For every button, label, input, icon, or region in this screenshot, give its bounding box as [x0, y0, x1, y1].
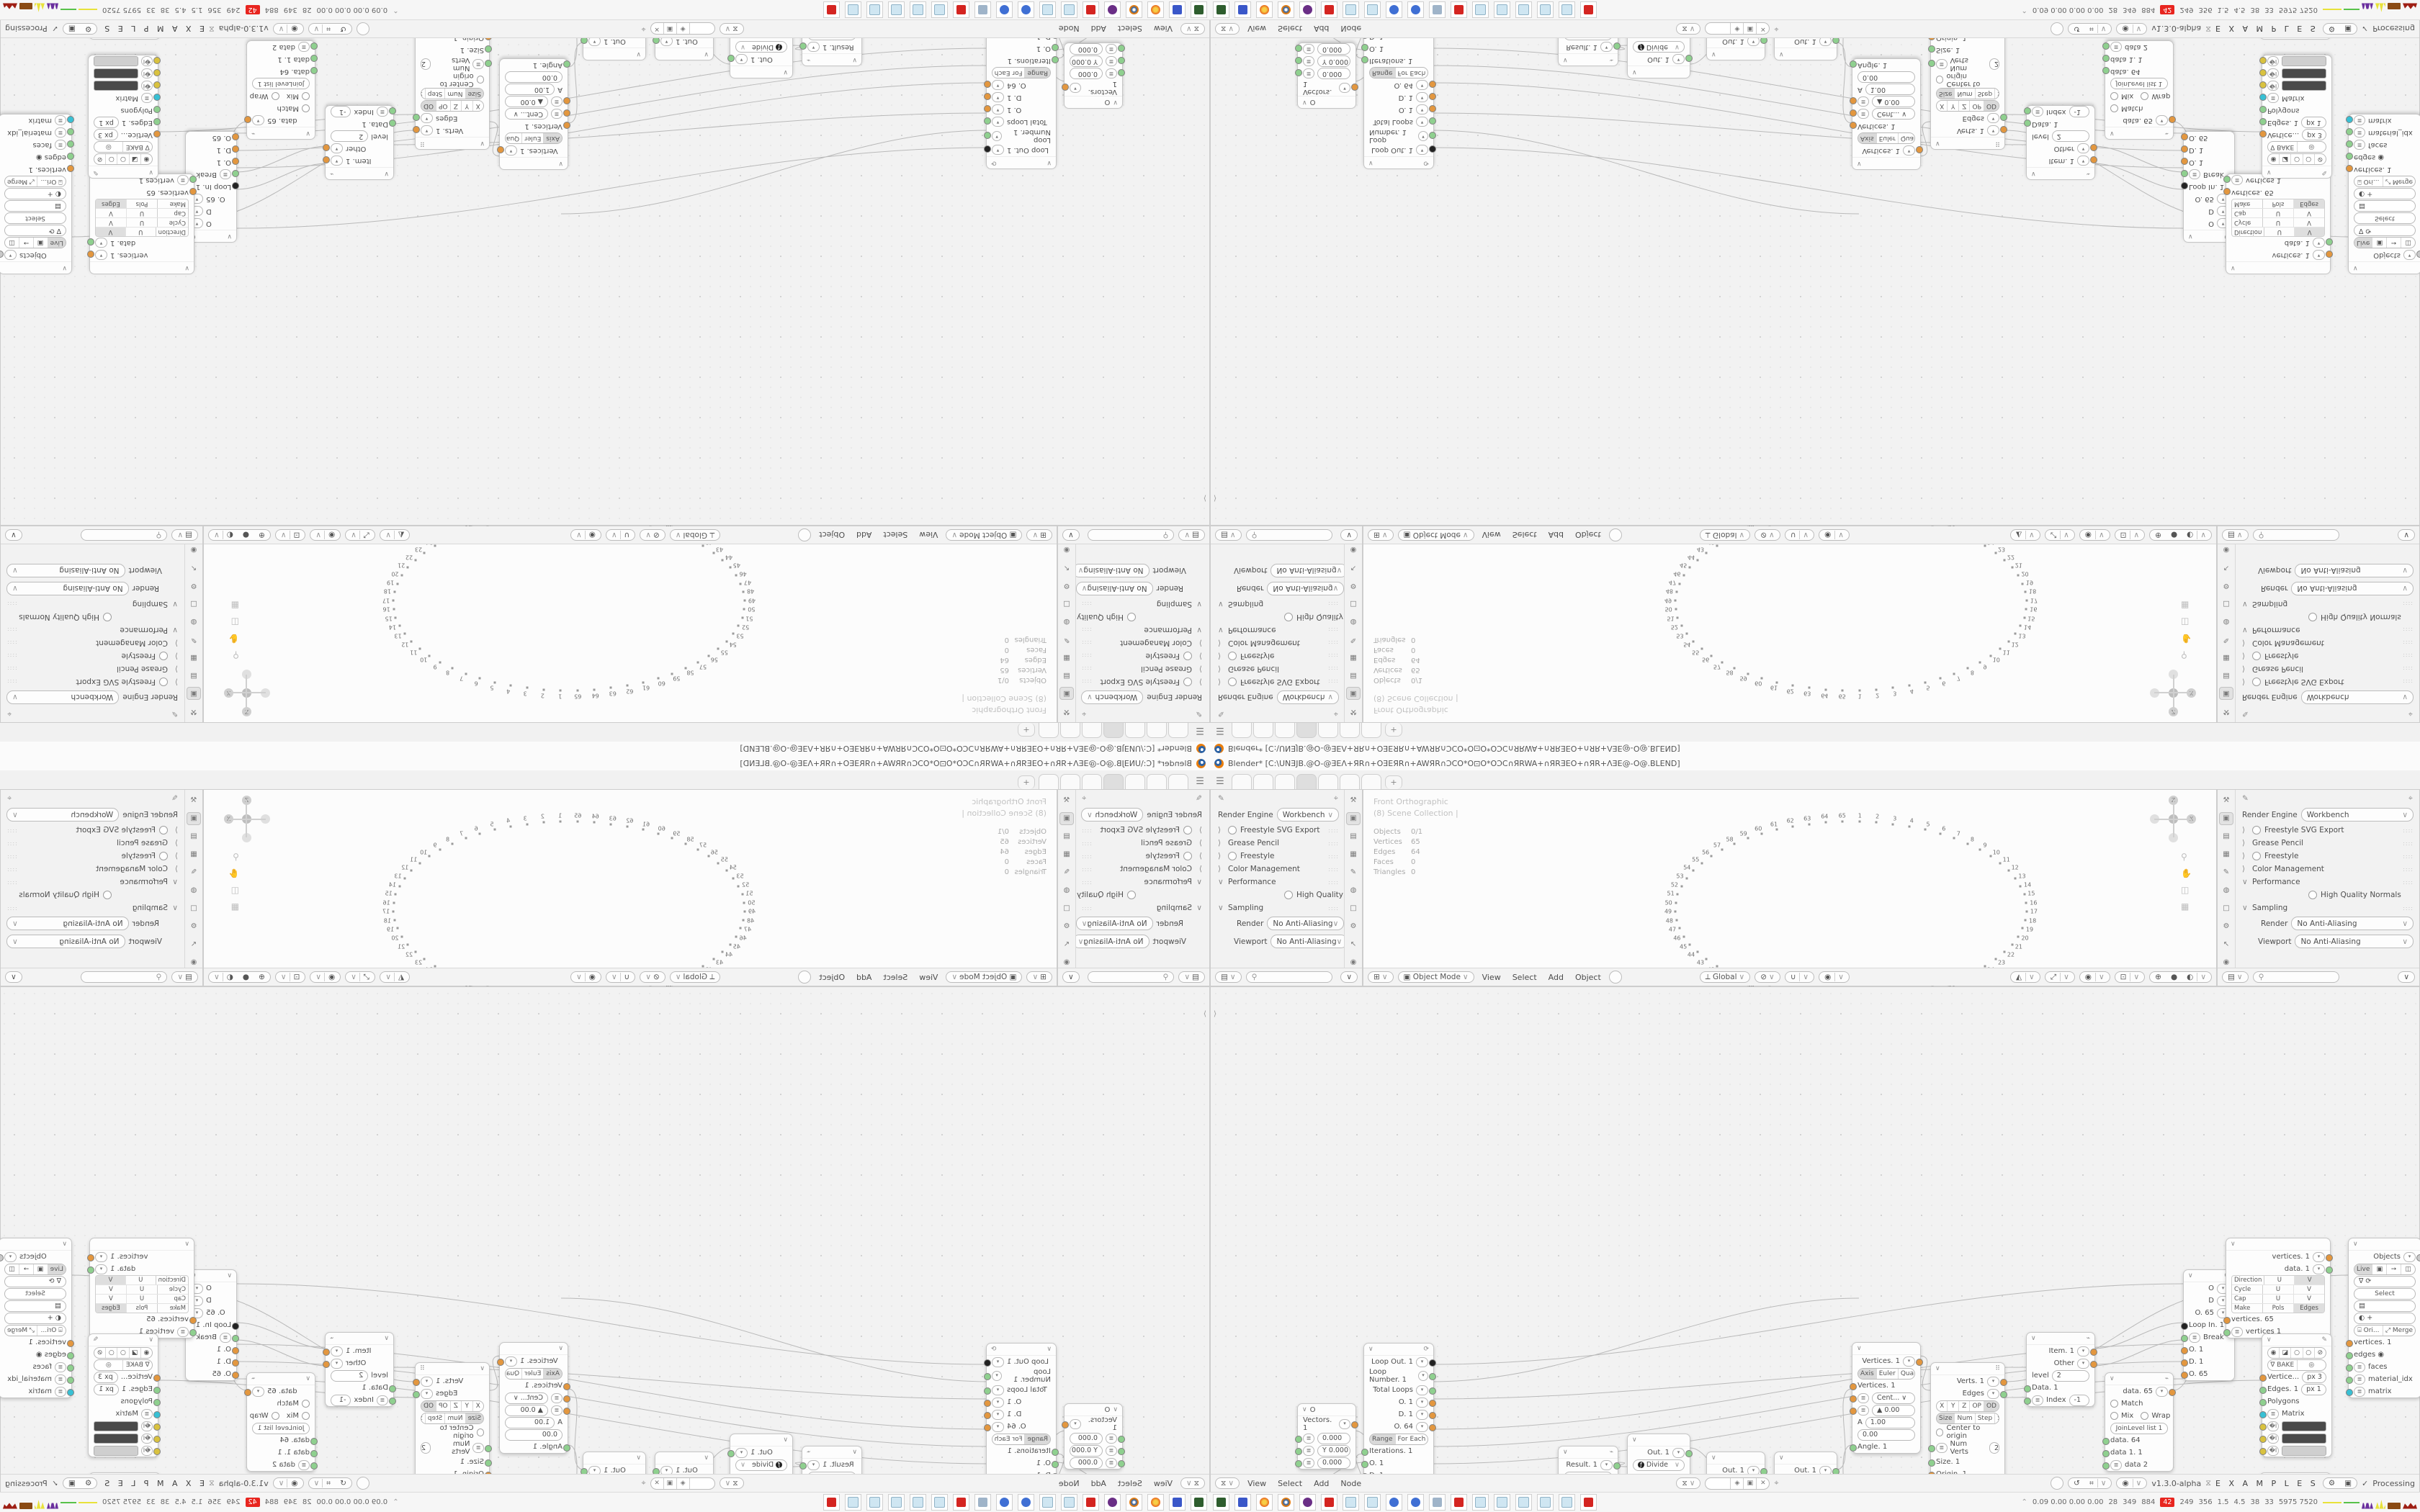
button-group[interactable]: ◉◪○○⊘: [94, 154, 153, 166]
sidebar-collapse-arrow[interactable]: ⟩: [1204, 494, 1206, 502]
dropdown-viewport[interactable]: No Anti-Aliasing∨: [2295, 935, 2414, 948]
object-filter-button[interactable]: ◉∨: [2116, 1477, 2147, 1489]
taskbar-app-icon-note[interactable]: [1537, 1, 1554, 18]
properties-tab-icon-3[interactable]: ▦: [187, 651, 201, 664]
value-field[interactable]: 0.000: [1317, 44, 1350, 55]
input-socket[interactable]: [2346, 1377, 2353, 1384]
value-field[interactable]: 0.000: [1070, 1433, 1103, 1444]
dropdown-render-engine[interactable]: Workbench∨: [1081, 808, 1143, 822]
properties-tab-icon-8[interactable]: ↖: [2219, 938, 2233, 951]
button-group[interactable]: RangeFor Each: [992, 68, 1051, 79]
taskbar-app-icon-note[interactable]: [931, 1, 948, 18]
taskbar-app-icon-blue[interactable]: [1018, 1494, 1034, 1511]
tree-field-button[interactable]: ✕: [651, 24, 664, 35]
socket-menu[interactable]: ▾: [331, 1359, 343, 1369]
output-socket[interactable]: [1429, 1359, 1436, 1367]
socket-menu[interactable]: ▾: [2403, 1252, 2416, 1262]
checkbox-mix[interactable]: Mix: [287, 1412, 310, 1420]
operation-dropdown[interactable]: ƒ Divide∨: [1633, 42, 1685, 53]
properties-search-input[interactable]: ⚲: [1246, 529, 1332, 541]
collapse-menu-button[interactable]: ∨: [1062, 971, 1080, 983]
node-menu-add[interactable]: Add: [1310, 1479, 1332, 1488]
editor-type-button[interactable]: ▤∨: [1215, 971, 1242, 983]
orientation-dropdown[interactable]: ⟂ Global∨: [1700, 971, 1751, 983]
button-group[interactable]: JoinLevel list 1: [252, 1423, 310, 1434]
taskbar-icons[interactable]: [1213, 1, 1597, 18]
node-list-item[interactable]: ∨⌁Item. 1▾Other▾level2Data. 1≣Index-1: [2026, 105, 2095, 180]
input-socket[interactable]: [67, 141, 74, 148]
output-socket[interactable]: [799, 43, 807, 50]
node-menu-add[interactable]: Add: [1088, 24, 1110, 34]
node-field[interactable]: ∇ ⟳: [4, 1276, 66, 1287]
input-socket[interactable]: [1118, 1436, 1125, 1443]
input-socket[interactable]: [2346, 1364, 2353, 1372]
snap-toggle[interactable]: ∪∨: [1785, 529, 1814, 541]
input-socket[interactable]: [232, 1323, 239, 1330]
node-menu-select[interactable]: Select: [1114, 1479, 1146, 1488]
properties-tab-icon-7[interactable]: ⚙: [1346, 920, 1361, 933]
socket-menu[interactable]: ▾: [95, 238, 107, 248]
properties-tab-icon-7[interactable]: ⚙: [1346, 579, 1361, 592]
output-socket[interactable]: [323, 157, 330, 164]
properties-tab-icon-8[interactable]: ↖: [187, 938, 201, 951]
node-field[interactable]: ▤: [4, 1300, 66, 1312]
input-socket[interactable]: [2346, 153, 2353, 161]
tree-field-button[interactable]: ▣: [664, 24, 677, 35]
value-field[interactable]: px 3: [2302, 1372, 2326, 1383]
taskbar-app-icon-firefox[interactable]: [1147, 1, 1164, 18]
radio-toggle[interactable]: [159, 826, 168, 834]
pivot-dropdown[interactable]: ⊘∨: [1754, 529, 1780, 541]
prop-row-render[interactable]: RenderNo Anti-Aliasing∨: [1237, 582, 1339, 595]
value-field[interactable]: ▲ 0.00: [1872, 1405, 1915, 1416]
output-socket[interactable]: [1916, 147, 1923, 154]
prop-row-render-engine[interactable]: Render EngineWorkbench∨: [1081, 808, 1202, 822]
properties-tab-icon-2[interactable]: ▤: [2219, 669, 2233, 682]
taskbar-app-icon-note[interactable]: [1472, 1494, 1489, 1511]
input-socket[interactable]: [563, 122, 570, 130]
taskbar-app-icon-gimp[interactable]: [1104, 1494, 1121, 1511]
input-socket[interactable]: [2181, 158, 2188, 166]
color-swatch[interactable]: [2282, 81, 2326, 91]
taskbar-app-icon-note[interactable]: [1343, 1, 1359, 18]
workspace-tab-3[interactable]: [1125, 774, 1145, 789]
node-vector-in-o[interactable]: ∨OVectors. 1▾≣0.000≣Y 0.000≣0.000: [1064, 42, 1123, 109]
add-workspace-button[interactable]: +: [1018, 775, 1035, 789]
socket-menu[interactable]: ▾: [1070, 1419, 1081, 1429]
tree-name-input[interactable]: ◈▣✕: [1705, 23, 1770, 35]
sidebar-collapse-arrow[interactable]: ⟩: [1204, 1010, 1206, 1018]
radio-toggle[interactable]: [2252, 652, 2261, 660]
properties-tab-icon-0[interactable]: ⚒: [1059, 794, 1074, 807]
radio-toggle[interactable]: [159, 678, 168, 686]
output-socket[interactable]: [244, 117, 251, 124]
value-field[interactable]: Y 0.000: [1070, 56, 1103, 68]
output-socket[interactable]: [799, 1462, 807, 1470]
node-menu-node[interactable]: Node: [1055, 24, 1083, 34]
value-field[interactable]: px 3: [2302, 130, 2326, 141]
processing-checkbox[interactable]: ✓: [52, 1479, 58, 1488]
option-table[interactable]: DirectionUVCycleUVCapUVMakePolsEdges: [95, 199, 189, 237]
input-socket[interactable]: [1052, 1449, 1059, 1456]
properties-tab-icon-5[interactable]: ◍: [1346, 884, 1361, 897]
taskbar-app-icon-note[interactable]: [1343, 1494, 1359, 1511]
input-socket[interactable]: [1118, 1460, 1125, 1467]
node-rotate-vertices[interactable]: ∨Vertices. 1▾AxisEulerQuatVertices. 1≣Ce…: [1852, 1342, 1921, 1454]
input-socket[interactable]: [310, 1462, 318, 1470]
workspace-tab-6[interactable]: [1340, 723, 1360, 738]
node-menu-add[interactable]: Add: [1088, 1479, 1110, 1488]
output-socket[interactable]: [2090, 1361, 2097, 1368]
viewport-gizmo-3[interactable]: ▦: [2181, 600, 2192, 611]
viewport-side-gizmos[interactable]: ⚲✋◫▦: [228, 852, 239, 912]
mode-dropdown[interactable]: ▣ Object Mode∨: [946, 971, 1022, 983]
input-socket[interactable]: [67, 1352, 74, 1359]
taskbar-app-icon-gear[interactable]: [1580, 1, 1597, 18]
input-socket[interactable]: [153, 131, 161, 138]
properties-tab-icon-1[interactable]: ▣: [1059, 687, 1074, 700]
option-table[interactable]: DirectionUVCycleUVCapUVMakePolsEdges: [2231, 199, 2325, 237]
color-swatch[interactable]: [2282, 1446, 2326, 1456]
proportional-edit-toggle[interactable]: ◉∨: [570, 529, 601, 541]
input-socket[interactable]: [232, 1335, 239, 1342]
input-socket[interactable]: [2346, 129, 2353, 136]
radio-toggle[interactable]: [2308, 891, 2317, 899]
value-field[interactable]: 2: [421, 1442, 431, 1454]
properties-tab-icon-7[interactable]: ⚙: [2219, 579, 2233, 592]
properties-tab-icon-4[interactable]: ✎: [2219, 633, 2233, 646]
node-field[interactable]: ∇ ⟳: [2354, 1276, 2416, 1287]
socket-menu[interactable]: ▾: [1339, 1419, 1350, 1429]
workspace-tab-5[interactable]: [1082, 774, 1102, 789]
taskbar-app-icon-note[interactable]: [1364, 1494, 1381, 1511]
socket-menu[interactable]: ▾: [1416, 1410, 1428, 1420]
socket-menu[interactable]: ▾: [2077, 1346, 2089, 1356]
value-field[interactable]: 0.00: [1857, 1429, 1915, 1441]
input-socket[interactable]: [1295, 1460, 1302, 1467]
taskbar-app-icon-note[interactable]: [1039, 1494, 1056, 1511]
snap-toggle[interactable]: ∪∨: [1785, 971, 1814, 983]
header-circle-button[interactable]: [2051, 1477, 2063, 1490]
button-group[interactable]: AxisEulerQuat: [505, 1368, 563, 1380]
value-field[interactable]: px 3: [94, 130, 118, 141]
node-list-item[interactable]: ∨⌁Item. 1▾Other▾level2Data. 1≣Index-1: [325, 1332, 394, 1407]
workspace-tab-3[interactable]: [1125, 723, 1145, 738]
proportional-edit-toggle[interactable]: ◉∨: [1819, 529, 1850, 541]
dropdown-viewport[interactable]: No Anti-Aliasing∨: [1270, 564, 1345, 577]
node-viewer-draw[interactable]: ∨✎◉◪○○⊘∇ BAKE◎Vertice...px 3Edges. 1px 1…: [2262, 1333, 2332, 1457]
prop-row-viewport[interactable]: ViewportNo Anti-Aliasing∨: [1081, 564, 1186, 577]
shading-mode-switch[interactable]: ⊕●◐∨: [2149, 529, 2212, 541]
socket-menu[interactable]: ▾: [1416, 93, 1428, 103]
taskbar-app-icon-gear[interactable]: [1451, 1494, 1467, 1511]
value-field[interactable]: ▲ 0.00: [1872, 96, 1915, 108]
output-socket[interactable]: [1062, 1421, 1069, 1428]
operation-dropdown[interactable]: ƒ Divide∨: [735, 1459, 787, 1471]
output-socket[interactable]: [87, 251, 94, 258]
checkbox-center-to-origin[interactable]: Center to origin: [421, 72, 484, 88]
output-socket[interactable]: [984, 1387, 991, 1395]
radio-toggle[interactable]: [1183, 826, 1192, 834]
viewport-gizmo-3[interactable]: ▦: [228, 901, 239, 912]
collapse-menu-button[interactable]: ∨: [2398, 529, 2415, 541]
checkbox-match[interactable]: Match: [277, 104, 310, 112]
properties-tab-icon-9[interactable]: ◉: [2219, 543, 2233, 556]
taskbar-app-icon-floppy64[interactable]: [1234, 1, 1251, 18]
taskbar-app-icon-floppy64[interactable]: [1169, 1, 1186, 18]
viewport-3d[interactable]: Front Orthographic (8) Scene Collection …: [203, 526, 1057, 723]
socket-menu[interactable]: ▾: [992, 93, 1004, 103]
button-group[interactable]: ◉◪○○⊘: [2267, 1347, 2326, 1359]
viewport-3d[interactable]: Front Orthographic (8) Scene Collection …: [1363, 789, 2217, 986]
node-rotate-vertices[interactable]: ∨Vertices. 1▾AxisEulerQuatVertices. 1≣Ce…: [499, 1342, 568, 1454]
processing-checkbox[interactable]: ✓: [52, 24, 58, 34]
output-socket[interactable]: [1429, 132, 1436, 139]
socket-menu[interactable]: ▾: [807, 1460, 820, 1470]
workspace-tab-4[interactable]: [1296, 723, 1317, 738]
panel-pin-icon[interactable]: ⌖: [6, 793, 12, 804]
socket-menu[interactable]: ▾: [1070, 83, 1081, 93]
properties-tab-icon-3[interactable]: ▦: [1059, 848, 1074, 861]
collapse-menu-button[interactable]: ∨: [5, 971, 22, 983]
node-uv-connection[interactable]: ∨vertices. 1▾data. 1▾DirectionUVCycleUVC…: [2226, 174, 2331, 274]
input-socket[interactable]: [563, 1408, 570, 1415]
input-socket[interactable]: [485, 1459, 492, 1467]
button-group[interactable]: ◉◪○○⊘: [94, 1347, 153, 1359]
output-socket[interactable]: [2326, 239, 2333, 246]
input-socket[interactable]: [2259, 1411, 2267, 1418]
socket-menu[interactable]: ▾: [1416, 1398, 1428, 1408]
socket-menu[interactable]: ▾: [331, 144, 343, 154]
input-socket[interactable]: [485, 60, 492, 67]
output-socket[interactable]: [0, 1254, 4, 1261]
properties-tab-icon-2[interactable]: ▤: [1059, 830, 1074, 843]
input-socket[interactable]: [2024, 1385, 2031, 1392]
editor-type-button[interactable]: ⧖∨: [1215, 23, 1240, 35]
output-socket[interactable]: [984, 1412, 991, 1419]
viewport-search-button[interactable]: [1609, 971, 1622, 984]
button-group[interactable]: Live▣➙◫: [2354, 1264, 2416, 1275]
taskbar-app-icon-note[interactable]: [845, 1, 861, 18]
menu-hamburger-icon[interactable]: ☰: [1211, 776, 1229, 787]
output-socket[interactable]: [1832, 37, 1839, 45]
properties-tab-icon-0[interactable]: ⚒: [1346, 794, 1361, 807]
dropdown-viewport[interactable]: No Anti-Aliasing∨: [6, 564, 125, 577]
socket-menu[interactable]: ▾: [1339, 83, 1350, 93]
button-group[interactable]: JoinLevel list 1: [2110, 78, 2168, 90]
properties-tab-icon-4[interactable]: ✎: [1059, 633, 1074, 646]
dropdown-render-engine[interactable]: Workbench∨: [1277, 690, 1339, 704]
value-field[interactable]: ▲ 0.00: [505, 96, 548, 108]
taskbar-app-icon-gear[interactable]: [1580, 1494, 1597, 1511]
option-table[interactable]: DirectionUVCycleUVCapUVMakePolsEdges: [2231, 1275, 2325, 1313]
input-socket[interactable]: [1295, 45, 1302, 53]
tree-field-button[interactable]: ▣: [1743, 1478, 1756, 1489]
taskbar-app-icon-blue[interactable]: [1386, 1494, 1402, 1511]
dropdown-render-engine[interactable]: Workbench∨: [1081, 690, 1143, 704]
overlay-toggle-0[interactable]: ◭∨: [380, 529, 410, 541]
socket-menu[interactable]: ▾: [1987, 114, 1999, 124]
tree-field-button[interactable]: ◈: [1730, 24, 1743, 35]
header-circle-button[interactable]: [357, 1477, 369, 1490]
socket-menu[interactable]: ▾: [1416, 81, 1428, 91]
taskbar-app-icon-gear[interactable]: [823, 1494, 840, 1511]
dropdown-viewport[interactable]: No Anti-Aliasing∨: [2295, 564, 2414, 577]
viewport-gizmo-2[interactable]: ◫: [228, 885, 239, 895]
editor-type-button[interactable]: ⊞∨: [1368, 971, 1394, 983]
tree-field-button[interactable]: ✕: [1756, 1478, 1769, 1489]
workspace-tab-6[interactable]: [1060, 723, 1080, 738]
node-uv-connection[interactable]: ∨vertices. 1▾data. 1▾DirectionUVCycleUVC…: [89, 174, 194, 274]
taskbar-app-icon-gear[interactable]: [1083, 1, 1099, 18]
socket-menu[interactable]: ▾: [992, 1410, 1004, 1420]
output-socket[interactable]: [1613, 1462, 1621, 1470]
value-field[interactable]: Y 0.000: [1317, 1445, 1350, 1457]
value-field[interactable]: 0.000: [1070, 68, 1103, 80]
properties-tab-icon-1[interactable]: ▣: [187, 812, 201, 825]
checkbox-center-to-origin[interactable]: Center to origin: [1936, 72, 1999, 88]
dropdown-render[interactable]: No Anti-Aliasing∨: [1076, 917, 1153, 930]
value-field[interactable]: 0.000: [1317, 1433, 1350, 1444]
input-socket[interactable]: [1361, 1449, 1368, 1456]
taskbar-app-icon-note[interactable]: [1515, 1, 1532, 18]
properties-tab-icon-1[interactable]: ▣: [1059, 812, 1074, 825]
dropdown-render[interactable]: No Anti-Aliasing∨: [1267, 582, 1344, 595]
properties-tab-icon-4[interactable]: ✎: [1346, 633, 1361, 646]
checkbox-wrap[interactable]: Wrap: [2141, 1412, 2170, 1420]
input-socket[interactable]: [310, 1450, 318, 1457]
socket-menu[interactable]: ▾: [1903, 1356, 1915, 1367]
viewport-gizmo-0[interactable]: ⚲: [2181, 650, 2192, 660]
tree-browse-button[interactable]: ⧖∨: [720, 1477, 744, 1489]
window-titlebar[interactable]: Blender* [C:\UNƎJB.@O-@ƎEΛ+ЯR∩+OƎEЯR∩+AW…: [1210, 756, 2420, 771]
taskbar-app-icon-cam[interactable]: [1191, 1494, 1207, 1511]
socket-menu[interactable]: ▾: [421, 114, 433, 124]
editor-type-button[interactable]: ▤∨: [171, 529, 198, 541]
node-menu-view[interactable]: View: [1150, 1479, 1176, 1488]
overlay-toggle-0[interactable]: ◭∨: [2010, 971, 2040, 983]
taskbar-app-icon-gear[interactable]: [1451, 1, 1467, 18]
color-swatch[interactable]: [94, 57, 138, 67]
node-field[interactable]: ▤: [2354, 1300, 2416, 1312]
button-group[interactable]: Live▣➙◫: [2354, 238, 2416, 249]
input-socket[interactable]: [153, 1411, 161, 1418]
taskbar-app-icon-blue[interactable]: [996, 1, 1013, 18]
value-field[interactable]: 0.000: [1070, 1457, 1103, 1469]
properties-tab-icon-4[interactable]: ✎: [2219, 866, 2233, 879]
taskbar-app-icon-note[interactable]: [910, 1494, 926, 1511]
checkbox-mix[interactable]: Mix: [2110, 92, 2133, 100]
input-socket[interactable]: [1850, 122, 1857, 130]
properties-tab-icon-8[interactable]: ↖: [1059, 938, 1074, 951]
radio-toggle[interactable]: [2308, 613, 2317, 621]
output-socket[interactable]: [2326, 251, 2333, 258]
socket-menu[interactable]: ▾: [421, 1377, 433, 1387]
taskbar-app-icon-gear[interactable]: [823, 1, 840, 18]
properties-search-input[interactable]: ⚲: [81, 529, 167, 541]
viewport-gizmo-1[interactable]: ✋: [228, 634, 239, 644]
viewport-gizmo-1[interactable]: ✋: [2181, 634, 2192, 644]
properties-tab-icon-8[interactable]: ↖: [1346, 561, 1361, 574]
output-socket[interactable]: [323, 1349, 330, 1356]
workspace-tab-4[interactable]: [1103, 723, 1124, 738]
socket-menu[interactable]: ▾: [992, 1357, 1004, 1367]
output-socket[interactable]: [653, 37, 660, 45]
socket-menu[interactable]: ▾: [2077, 144, 2089, 154]
button-group[interactable]: JoinLevel list 1: [252, 78, 310, 90]
tree-field-button[interactable]: ✕: [651, 1478, 664, 1489]
orientation-dropdown[interactable]: ⟂ Global∨: [1700, 529, 1751, 541]
mode-dropdown[interactable]: ▣ Object Mode∨: [1398, 971, 1474, 983]
output-socket[interactable]: [2000, 1391, 2007, 1398]
dropdown-viewport[interactable]: No Anti-Aliasing∨: [1075, 564, 1149, 577]
output-socket[interactable]: [1429, 1412, 1436, 1419]
node-vector-in-o[interactable]: ∨OVectors. 1▾≣0.000≣Y 0.000≣0.000: [1297, 42, 1356, 109]
input-socket[interactable]: [153, 94, 161, 102]
button-group[interactable]: XYZOPOD: [421, 101, 484, 112]
viewport-menu-object[interactable]: Object: [1572, 531, 1605, 540]
output-socket[interactable]: [1429, 1400, 1436, 1407]
button-group[interactable]: Live▣➙◫: [4, 238, 66, 249]
input-socket[interactable]: [2181, 171, 2188, 178]
taskbar-app-icon-note[interactable]: [910, 1, 926, 18]
panel-pin-icon[interactable]: ⌖: [1334, 708, 1339, 719]
socket-menu[interactable]: ▾: [1987, 1377, 1999, 1387]
workspace-tab-4[interactable]: [1296, 774, 1317, 789]
value-field[interactable]: 1.00: [1865, 1417, 1915, 1428]
panel-pin-icon[interactable]: ⌖: [2408, 793, 2414, 804]
value-field[interactable]: px 1: [2301, 117, 2326, 129]
viewport-3d[interactable]: Front Orthographic (8) Scene Collection …: [1363, 526, 2217, 723]
properties-search-input[interactable]: ⚲: [1246, 971, 1332, 983]
input-socket[interactable]: [2259, 131, 2267, 138]
taskbar-app-icon-floppy64[interactable]: [1169, 1494, 1186, 1511]
socket-menu[interactable]: ▾: [2156, 1387, 2168, 1397]
editor-type-button[interactable]: ⊞∨: [1368, 529, 1394, 541]
output-socket[interactable]: [1685, 55, 1693, 63]
input-socket[interactable]: [1295, 1448, 1302, 1455]
tree-browse-button[interactable]: ⧖∨: [1676, 23, 1700, 35]
input-socket[interactable]: [2181, 1359, 2188, 1367]
value-field[interactable]: -1: [2069, 107, 2089, 118]
input-socket[interactable]: [232, 134, 239, 141]
dropdown-render-engine[interactable]: Workbench∨: [2301, 808, 2414, 822]
socket-menu[interactable]: ▾: [735, 55, 748, 65]
input-socket[interactable]: [563, 1444, 570, 1452]
node-editor[interactable]: ⟩ ∨OVectors. 1▾≣0.000≣Y 0.000≣0.000∨DVec…: [1210, 986, 2420, 1493]
value-field[interactable]: Cent... ∨: [1872, 109, 1915, 120]
value-field[interactable]: Cent... ∨: [1872, 1392, 1915, 1404]
taskbar-app-icon-blender[interactable]: [1126, 1, 1142, 18]
properties-tab-icon-8[interactable]: ↖: [2219, 561, 2233, 574]
input-socket[interactable]: [153, 119, 161, 126]
button-group[interactable]: ∇ BAKE◎: [94, 1359, 153, 1371]
viewport-menu-add[interactable]: Add: [853, 531, 875, 540]
input-socket[interactable]: [389, 1398, 396, 1405]
node-uv-connection[interactable]: ∨vertices. 1▾data. 1▾DirectionUVCycleUVC…: [89, 1238, 194, 1338]
node-field[interactable]: ◐ +: [2354, 1313, 2416, 1324]
prop-row-render-engine[interactable]: Render EngineWorkbench∨: [1218, 808, 1339, 822]
overlay-toggle-3[interactable]: ⊡∨: [275, 971, 306, 983]
button-group[interactable]: SizeNumStepSt+Si: [1936, 89, 1999, 100]
output-socket[interactable]: [413, 114, 420, 122]
output-socket[interactable]: [984, 1400, 991, 1407]
output-socket[interactable]: [984, 1359, 991, 1367]
sidebar-collapse-arrow[interactable]: ⟩: [1214, 494, 1216, 502]
properties-tab-icon-1[interactable]: ▣: [2219, 812, 2233, 825]
taskbar-app-icon-blender[interactable]: [1278, 1494, 1294, 1511]
output-socket[interactable]: [2169, 117, 2176, 124]
